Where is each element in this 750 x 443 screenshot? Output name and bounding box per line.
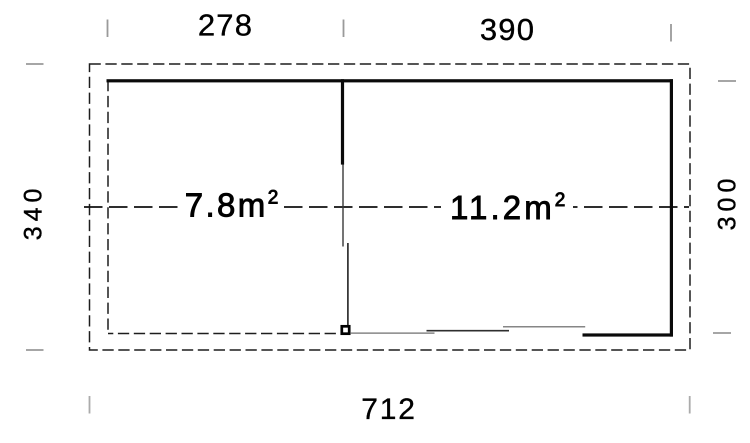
- svg-text:390: 390: [480, 12, 535, 47]
- svg-text:300: 300: [713, 174, 741, 231]
- svg-text:278: 278: [198, 8, 253, 43]
- svg-text:11.2m2: 11.2m2: [450, 189, 565, 226]
- svg-text:7.8m2: 7.8m2: [185, 187, 279, 224]
- svg-text:340: 340: [19, 184, 47, 241]
- svg-text:712: 712: [361, 393, 416, 426]
